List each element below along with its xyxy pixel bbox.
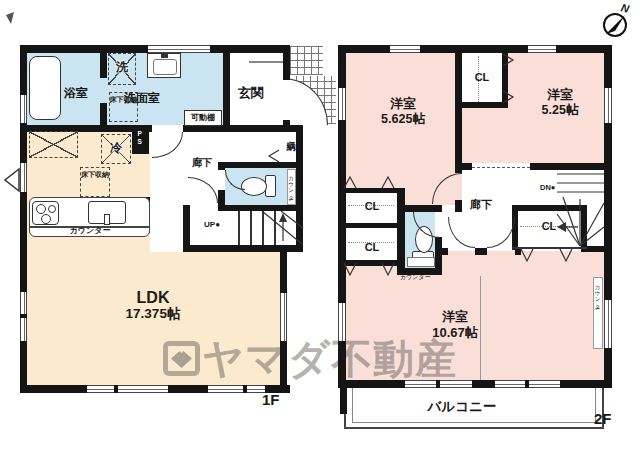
wall xyxy=(397,188,405,275)
stair-tread xyxy=(274,211,276,245)
stair-tread xyxy=(250,211,252,245)
wall xyxy=(338,380,405,388)
toilet-counter-label: カウンター xyxy=(289,172,295,197)
window-mullion xyxy=(114,385,118,393)
wall xyxy=(604,123,612,300)
window xyxy=(148,45,210,53)
bedroom3-size-label: 10.67帖 xyxy=(420,326,490,340)
wall xyxy=(530,163,612,170)
balcony-label: バルコニー xyxy=(412,400,512,415)
wall xyxy=(560,380,612,388)
stairs-up-label: UP● xyxy=(204,221,220,230)
wall xyxy=(218,162,296,168)
kitchen-counter-label: カウンター xyxy=(40,227,140,236)
closet-label: CL xyxy=(350,241,394,253)
sink-bowl xyxy=(153,59,177,75)
window-mullion xyxy=(243,385,247,393)
wall xyxy=(100,52,107,78)
floor-plan: ヤマダ不動産 洗 床下収納 可動棚 冷 PS 床下収納 xyxy=(0,0,640,469)
wall xyxy=(344,188,400,193)
stove-burner xyxy=(48,205,56,213)
wall xyxy=(20,192,27,292)
wall xyxy=(168,385,208,393)
storage-label: 収納 xyxy=(285,134,295,136)
stair-tread xyxy=(238,211,240,245)
wall xyxy=(283,120,290,132)
wall-marker-icon xyxy=(5,169,19,191)
ldk-size-label: 17.375帖 xyxy=(110,307,196,322)
wall xyxy=(455,163,472,170)
window xyxy=(338,88,346,120)
wall xyxy=(210,45,283,53)
window xyxy=(604,88,612,123)
wall xyxy=(344,260,400,266)
ldk-name-label: LDK xyxy=(118,289,188,307)
window xyxy=(20,95,27,123)
compass-icon xyxy=(603,13,627,37)
wall xyxy=(183,205,190,252)
bathtub xyxy=(29,56,61,120)
fridge-label: 冷 xyxy=(101,142,131,155)
hallway2f-label: 廊下 xyxy=(470,198,492,210)
closet-label: CL xyxy=(350,200,394,212)
hallway1f-label: 廊下 xyxy=(192,157,212,168)
wall xyxy=(604,45,612,88)
floor2-label: 2F xyxy=(594,411,612,428)
wall xyxy=(223,52,230,132)
room-counter-label: カウンター xyxy=(595,281,601,306)
window-mullion xyxy=(436,380,440,388)
wall xyxy=(20,385,87,393)
closet-label: CL xyxy=(461,71,503,83)
sliding-door xyxy=(472,163,530,170)
wall xyxy=(581,205,587,250)
entrance-step-line xyxy=(249,61,283,63)
stairs-down-label: DN● xyxy=(540,184,555,192)
closet-label: CL xyxy=(527,220,571,232)
wall xyxy=(218,205,303,211)
kitchen-cupboard xyxy=(29,131,78,158)
kitchen-faucet xyxy=(104,214,110,225)
wall xyxy=(338,120,346,303)
wall xyxy=(218,162,225,170)
wall xyxy=(100,103,107,125)
wall xyxy=(20,45,27,95)
wall xyxy=(512,205,587,211)
window xyxy=(87,385,168,393)
bedroom1-size-label: 5.625帖 xyxy=(368,113,438,127)
bedroom2-size-label: 5.25帖 xyxy=(525,104,595,118)
floor1-label: 1F xyxy=(262,392,280,409)
wall xyxy=(344,223,400,228)
stove-burner xyxy=(36,204,46,214)
window xyxy=(338,303,346,341)
closet-front-line xyxy=(512,247,587,249)
wall xyxy=(296,125,303,252)
wall xyxy=(455,102,508,108)
wall xyxy=(442,248,448,255)
window xyxy=(208,385,265,393)
wall xyxy=(338,45,346,88)
pipe-space-label: PS xyxy=(136,130,143,146)
wall xyxy=(475,248,487,255)
stove-burner xyxy=(41,214,51,224)
entrance-porch-tiles-upper xyxy=(290,46,323,75)
window-mullion xyxy=(525,380,529,388)
bath-label: 浴室 xyxy=(64,87,88,100)
corner-mark xyxy=(6,12,14,24)
bedroom2-name-label: 洋室 xyxy=(530,88,590,102)
washroom-label: 洗面室 xyxy=(124,92,160,105)
wall xyxy=(435,205,442,212)
underfloor-storage-label: 床下収納 xyxy=(80,171,110,179)
window xyxy=(528,45,556,53)
stair-tread xyxy=(262,211,264,245)
window-mullion xyxy=(20,314,27,318)
wall xyxy=(420,45,528,53)
wall xyxy=(283,45,290,80)
bedroom1-name-label: 洋室 xyxy=(373,97,433,111)
window xyxy=(604,300,612,348)
movable-shelf-label: 可動棚 xyxy=(184,114,222,123)
bedroom3-name-label: 洋室 xyxy=(425,310,485,324)
window xyxy=(390,45,420,53)
sink-faucet xyxy=(161,54,168,58)
toilet-counter-label: カウンター xyxy=(400,274,431,281)
window xyxy=(20,163,27,192)
compass-north-label: N xyxy=(620,1,631,15)
wall xyxy=(472,380,495,388)
wall xyxy=(340,388,347,414)
toilet-counter xyxy=(407,257,435,267)
washer-label: 洗 xyxy=(108,61,136,74)
wall xyxy=(20,45,148,53)
window xyxy=(280,293,287,341)
entrance-label: 玄関 xyxy=(238,86,264,100)
